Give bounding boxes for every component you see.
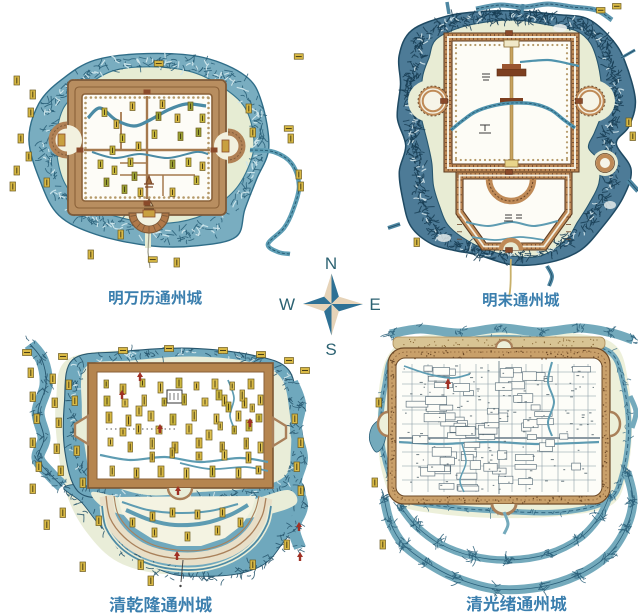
- svg-text:N: N: [325, 254, 337, 273]
- svg-text:E: E: [369, 295, 380, 314]
- svg-text:W: W: [279, 295, 295, 314]
- svg-text:S: S: [325, 340, 336, 359]
